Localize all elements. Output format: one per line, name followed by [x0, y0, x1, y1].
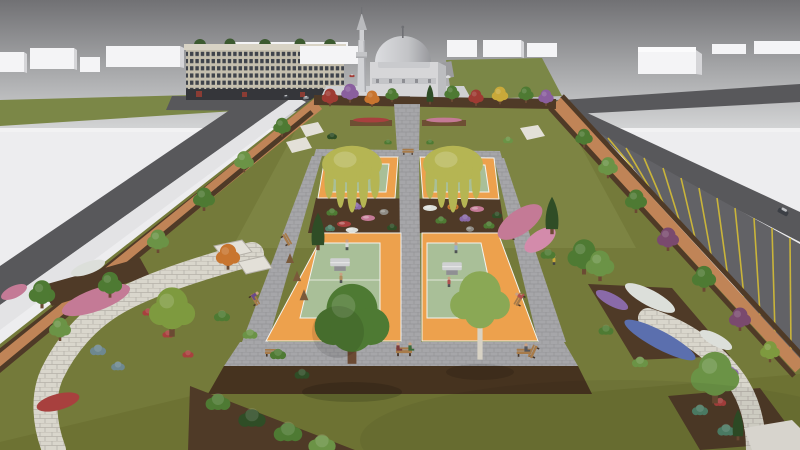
central-walkway [399, 156, 421, 343]
building-block [638, 50, 696, 74]
minaret-balcony [356, 52, 367, 57]
building-block [527, 43, 557, 57]
tree-texture [312, 306, 364, 358]
minaret-balcony-under [356, 57, 367, 59]
planter-flowers [353, 118, 389, 123]
flower-clump [423, 205, 437, 211]
building-block [483, 40, 521, 57]
building-block [754, 41, 800, 54]
dome-finial [402, 28, 404, 38]
mosque-walkway [394, 104, 420, 150]
arch [415, 79, 418, 83]
arch [428, 79, 431, 83]
arch [402, 79, 405, 83]
arch [389, 79, 392, 83]
building-block [30, 48, 74, 69]
rock [466, 226, 474, 231]
block-shade [521, 40, 524, 58]
render-viewport: Park landscape design 3D visualization [0, 0, 800, 450]
flower-clump [346, 227, 359, 232]
building-block [447, 40, 477, 57]
arch [376, 79, 379, 83]
flower-clump [361, 215, 375, 221]
building-block-roof [638, 47, 696, 52]
dome-finial-tip [401, 26, 404, 29]
office-door [300, 92, 305, 97]
planter-flowers [426, 118, 462, 123]
building-block [80, 57, 100, 72]
block-shade [24, 52, 27, 73]
office-door [242, 92, 247, 97]
stripe [790, 238, 791, 352]
tree-shadow [302, 382, 402, 402]
flower-clump [337, 221, 351, 227]
building-block [300, 46, 358, 64]
block-shade [180, 46, 184, 68]
building-block [712, 44, 746, 54]
block-shade [696, 50, 702, 75]
tree-shadow [446, 364, 514, 380]
building-block [0, 52, 24, 72]
building-block [106, 46, 180, 67]
block-shade [74, 48, 77, 70]
flower-clump [470, 206, 484, 212]
office-door [196, 91, 202, 97]
rock [380, 209, 389, 215]
